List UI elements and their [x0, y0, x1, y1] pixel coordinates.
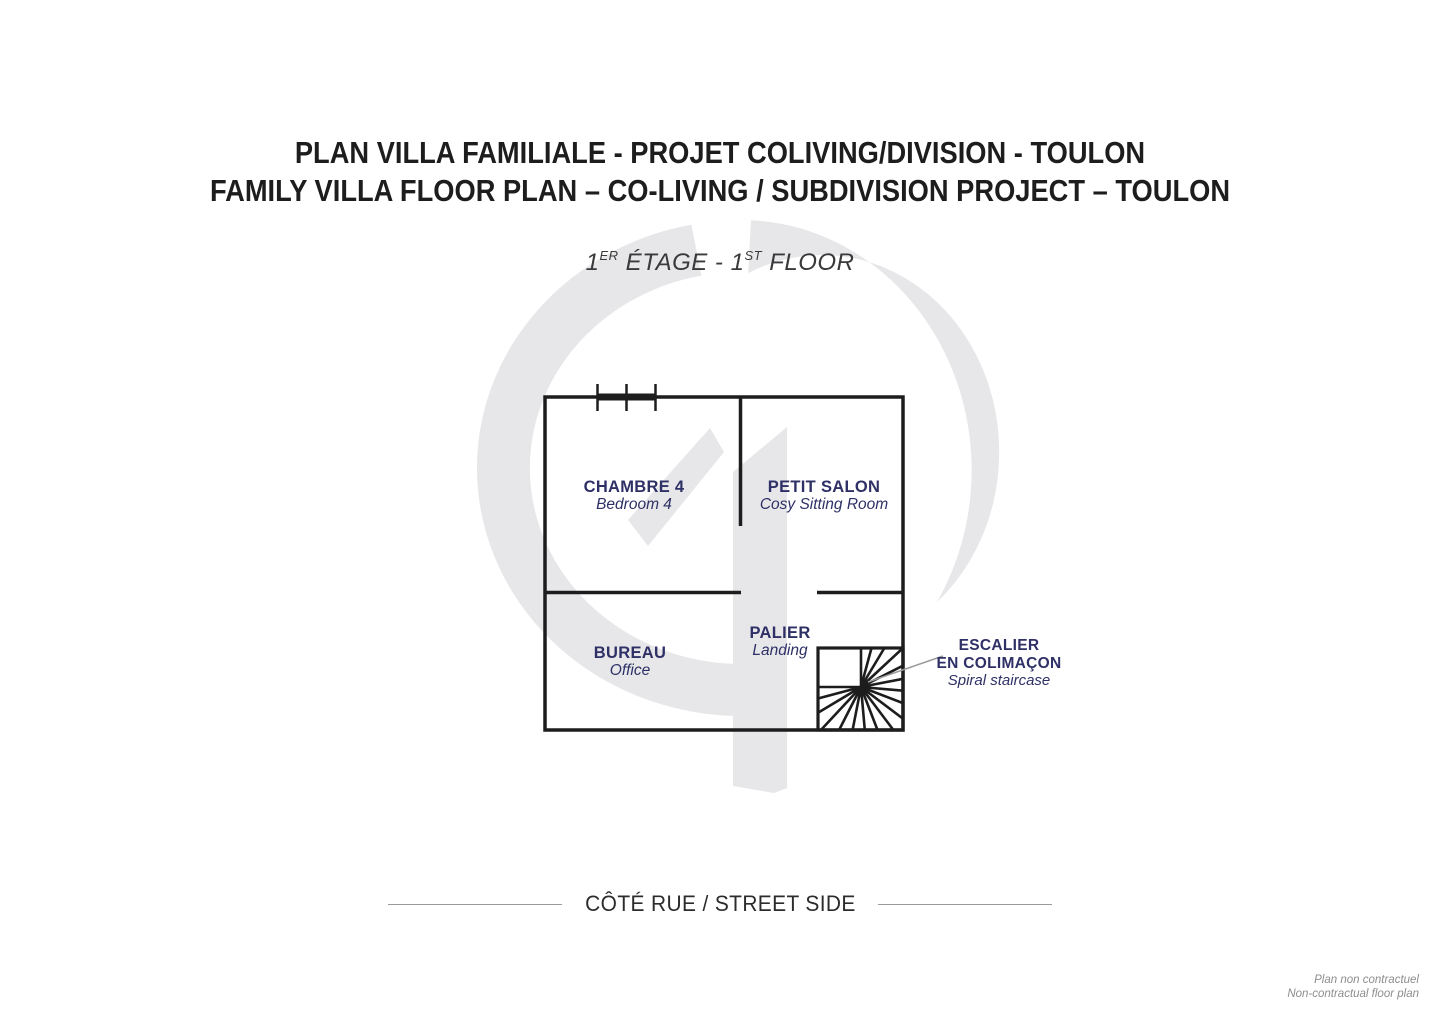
room-name-en: Bedroom 4	[584, 496, 685, 514]
street-side-label: CÔTÉ RUE / STREET SIDE	[585, 891, 856, 917]
street-side-indicator: CÔTÉ RUE / STREET SIDE	[0, 891, 1440, 917]
room-name-fr: CHAMBRE 4	[584, 478, 685, 496]
window-symbol	[597, 384, 656, 411]
street-side-left-line	[388, 904, 562, 905]
room-label-palier: PALIER Landing	[749, 624, 810, 660]
street-side-right-line	[878, 904, 1052, 905]
room-label-chambre4: CHAMBRE 4 Bedroom 4	[584, 478, 685, 514]
disclaimer-fr: Plan non contractuel	[1287, 974, 1419, 988]
room-name-fr: PETIT SALON	[760, 478, 888, 496]
disclaimer-en: Non-contractual floor plan	[1287, 988, 1419, 1002]
staircase-label: ESCALIER EN COLIMAÇON Spiral staircase	[936, 637, 1061, 690]
title-french: PLAN VILLA FAMILIALE - PROJET COLIVING/D…	[86, 134, 1353, 172]
spiral-staircase	[818, 648, 903, 730]
room-name-en: Cosy Sitting Room	[760, 496, 888, 514]
room-label-petit-salon: PETIT SALON Cosy Sitting Room	[760, 478, 888, 514]
title-english: FAMILY VILLA FLOOR PLAN – CO-LIVING / SU…	[86, 172, 1353, 210]
page-title: PLAN VILLA FAMILIALE - PROJET COLIVING/D…	[86, 134, 1353, 210]
room-name-en: Office	[594, 662, 666, 680]
room-name-fr: BUREAU	[594, 644, 666, 662]
watermark-logo	[477, 220, 999, 793]
room-name-en: Landing	[749, 642, 810, 660]
disclaimer: Plan non contractuel Non-contractual flo…	[1287, 974, 1419, 1001]
room-name-fr: PALIER	[749, 624, 810, 642]
room-label-bureau: BUREAU Office	[594, 644, 666, 680]
floor-level-label: 1ER ÉTAGE - 1ST FLOOR	[0, 249, 1440, 277]
